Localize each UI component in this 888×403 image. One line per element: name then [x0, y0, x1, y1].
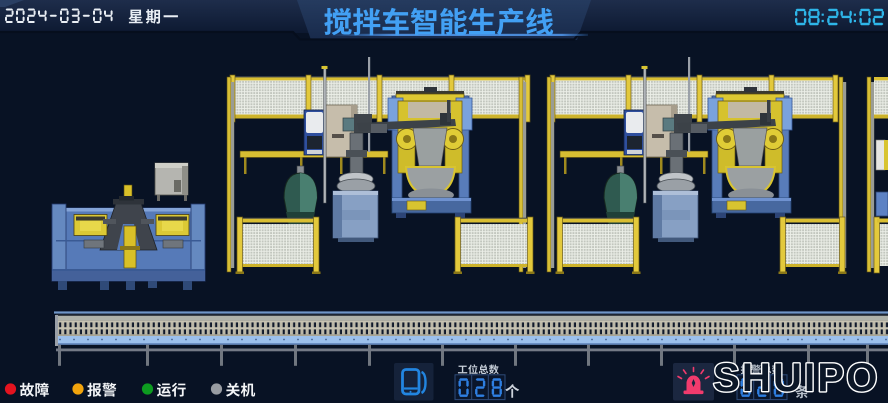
svg-text:SHUIPO: SHUIPO: [713, 356, 880, 400]
